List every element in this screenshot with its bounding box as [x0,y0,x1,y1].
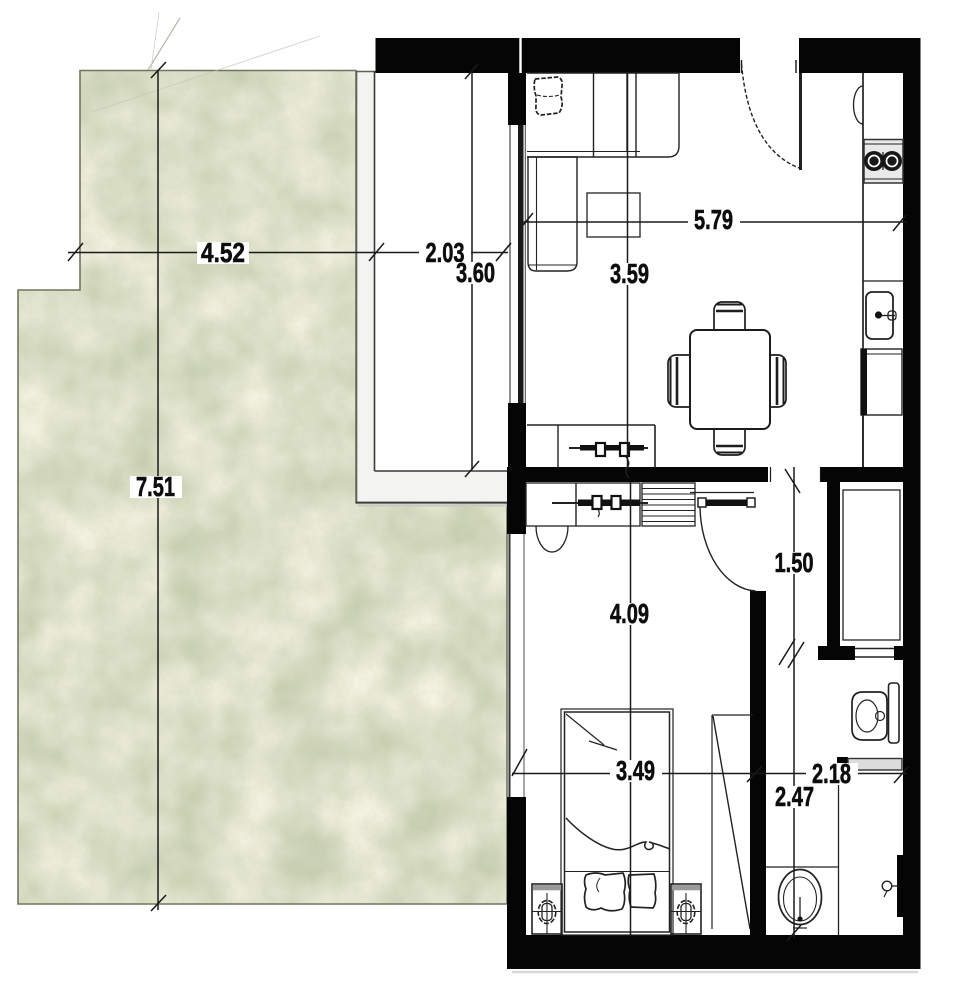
svg-text:2.47: 2.47 [775,781,814,812]
svg-text:3.59: 3.59 [610,258,649,289]
svg-text:2.18: 2.18 [812,758,851,789]
svg-text:5.79: 5.79 [694,204,733,235]
svg-text:7.51: 7.51 [136,471,175,502]
svg-text:3.60: 3.60 [456,257,495,288]
svg-text:4.52: 4.52 [201,237,245,268]
svg-text:1.50: 1.50 [775,547,814,578]
svg-text:4.09: 4.09 [610,598,649,629]
svg-text:3.49: 3.49 [616,755,655,786]
